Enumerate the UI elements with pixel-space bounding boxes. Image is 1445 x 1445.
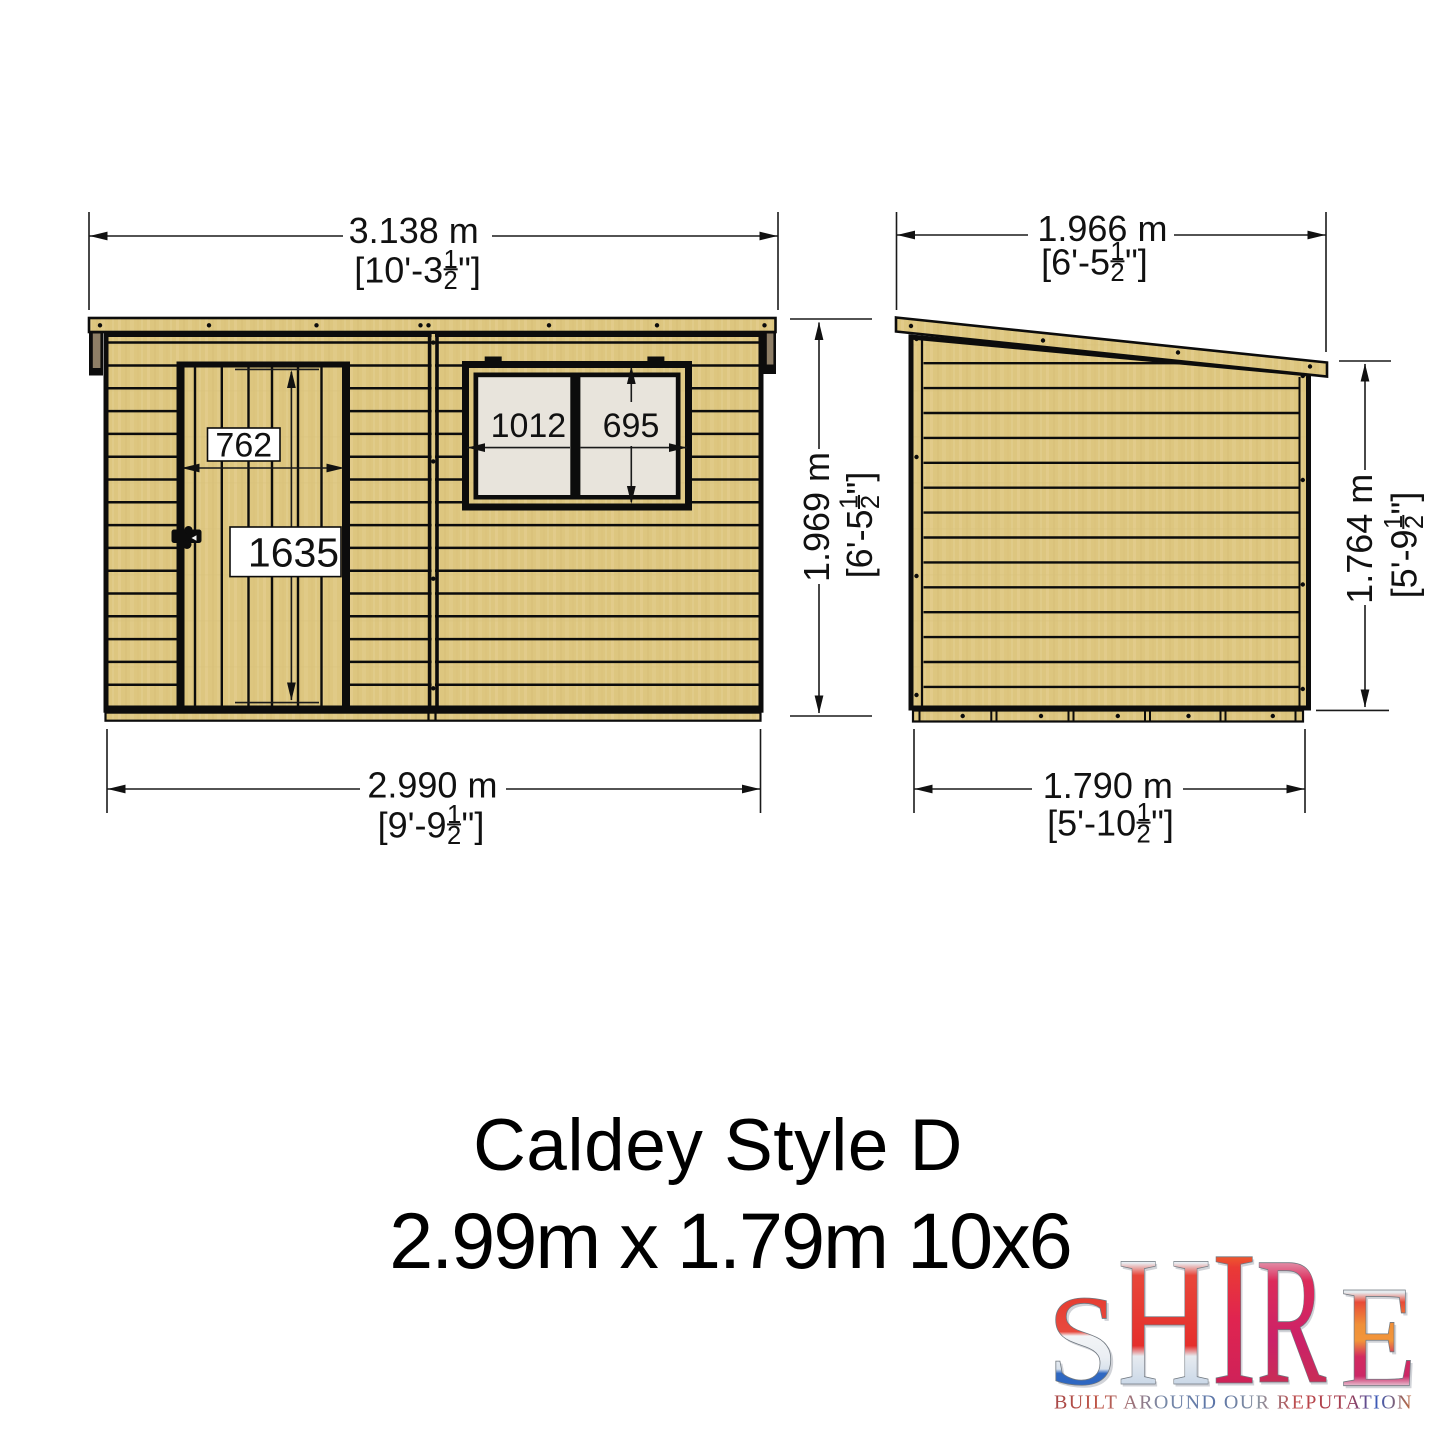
svg-text:2: 2 xyxy=(444,267,458,295)
svg-text:2: 2 xyxy=(447,822,461,850)
svg-text:2: 2 xyxy=(1136,820,1150,848)
svg-text:"]: "] xyxy=(1383,492,1424,515)
svg-text:1.969 m: 1.969 m xyxy=(796,452,837,582)
svg-text:[5'-9: [5'-9 xyxy=(1383,529,1424,598)
svg-text:3.138 m: 3.138 m xyxy=(349,210,479,251)
svg-text:2: 2 xyxy=(1401,515,1429,529)
svg-text:2: 2 xyxy=(1110,259,1124,287)
svg-text:"]: "] xyxy=(462,804,485,845)
svg-text:"]: "] xyxy=(458,249,481,290)
svg-text:2.990 m: 2.990 m xyxy=(367,764,497,805)
svg-text:[10'-3: [10'-3 xyxy=(354,249,443,290)
svg-text:2.99m x 1.79m 10x6: 2.99m x 1.79m 10x6 xyxy=(389,1196,1071,1285)
svg-text:"]: "] xyxy=(839,472,880,495)
svg-text:1012: 1012 xyxy=(491,407,567,445)
svg-text:"]: "] xyxy=(1125,241,1148,282)
svg-text:1.790 m: 1.790 m xyxy=(1043,765,1173,806)
svg-text:[5'-10: [5'-10 xyxy=(1047,803,1136,844)
svg-text:"]: "] xyxy=(1151,803,1174,844)
svg-text:695: 695 xyxy=(603,407,660,445)
svg-text:[6'-5: [6'-5 xyxy=(839,509,880,578)
svg-text:BUILT AROUND OUR REPUTATION: BUILT AROUND OUR REPUTATION xyxy=(1054,1392,1413,1414)
svg-text:[6'-5: [6'-5 xyxy=(1041,241,1110,282)
svg-text:2: 2 xyxy=(857,495,885,509)
svg-text:1.764 m: 1.764 m xyxy=(1339,474,1380,604)
svg-text:1635: 1635 xyxy=(248,530,339,576)
svg-text:[9'-9: [9'-9 xyxy=(378,804,447,845)
svg-text:Caldey Style D: Caldey Style D xyxy=(473,1105,963,1186)
svg-text:762: 762 xyxy=(215,427,272,465)
